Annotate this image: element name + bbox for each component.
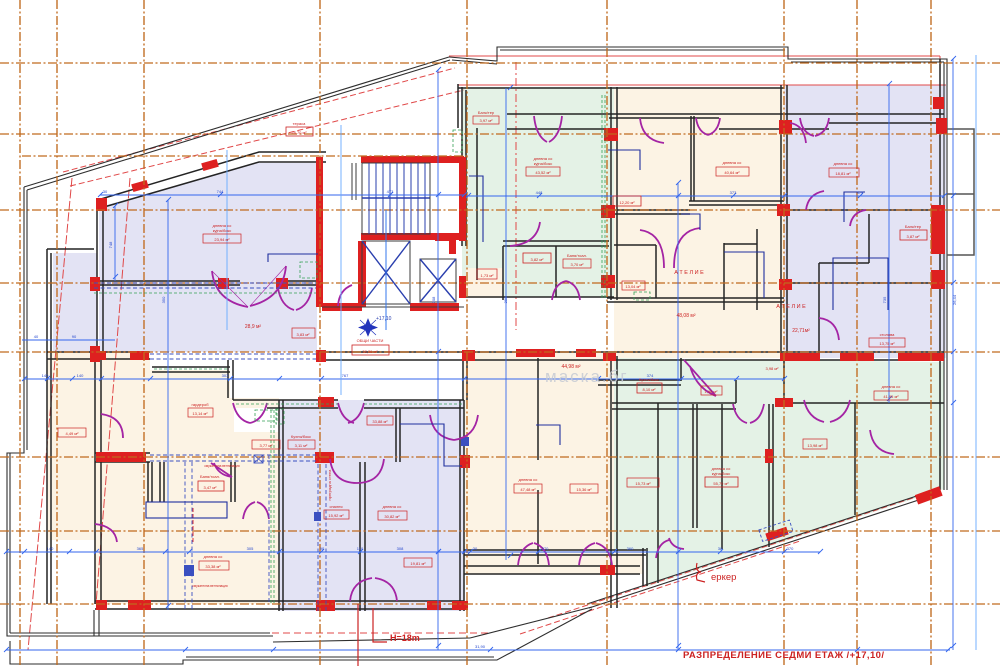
svg-text:55,79 м²: 55,79 м² — [713, 481, 729, 486]
svg-text:спалня: спалня — [329, 504, 342, 509]
svg-text:дневна со: дневна со — [383, 504, 402, 509]
svg-text:ОБЩИ ЧАСТИ: ОБЩИ ЧАСТИ — [357, 338, 384, 343]
svg-text:748: 748 — [108, 241, 113, 248]
svg-text:374: 374 — [647, 373, 654, 378]
svg-text:33,38 м²: 33,38 м² — [205, 564, 221, 569]
svg-text:290: 290 — [503, 296, 508, 303]
svg-text:735: 735 — [882, 296, 887, 303]
svg-text:смукателна вентилация: смукателна вентилация — [204, 464, 240, 468]
svg-text:15,36 м²: 15,36 м² — [576, 487, 592, 492]
svg-text:дневна со: дневна со — [834, 161, 853, 166]
svg-text:90: 90 — [72, 334, 77, 339]
svg-text:379: 379 — [857, 190, 864, 195]
svg-text:350: 350 — [161, 296, 166, 303]
svg-text:38: 38 — [718, 546, 723, 551]
svg-text:41,95 м²: 41,95 м² — [883, 394, 899, 399]
svg-text:3,47 м²: 3,47 м² — [204, 485, 218, 490]
svg-text:маска.бг: маска.бг — [545, 367, 629, 386]
svg-text:кујна/бокс: кујна/бокс — [712, 471, 731, 476]
svg-text:373: 373 — [730, 190, 737, 195]
svg-text:13,14 м²: 13,14 м² — [192, 411, 208, 416]
svg-text:23,94 м²: 23,94 м² — [214, 237, 230, 242]
svg-text:370: 370 — [787, 546, 794, 551]
svg-text:767: 767 — [342, 373, 349, 378]
svg-text:Балк/тер: Балк/тер — [478, 110, 495, 115]
svg-text:33,88 м²: 33,88 м² — [372, 419, 388, 424]
svg-text:15,73 м²: 15,73 м² — [635, 481, 651, 486]
svg-text:столова: столова — [880, 332, 896, 337]
svg-text:18,81 м²: 18,81 м² — [835, 171, 851, 176]
svg-text:3,70 м²: 3,70 м² — [571, 262, 585, 267]
svg-text:дневна со: дневна со — [723, 160, 742, 165]
svg-text:1,73 м²: 1,73 м² — [481, 273, 495, 278]
svg-text:31,90: 31,90 — [475, 644, 486, 649]
svg-text:12,20 м²: 12,20 м² — [619, 200, 635, 205]
svg-text:3,82 м²: 3,82 м² — [531, 257, 545, 262]
svg-text:дневна со: дневна со — [204, 554, 223, 559]
svg-text:308: 308 — [431, 296, 436, 303]
svg-text:1,98 м²: 1,98 м² — [705, 389, 719, 394]
svg-text:370: 370 — [542, 546, 549, 551]
svg-text:H=18m: H=18m — [390, 633, 420, 643]
svg-text:365: 365 — [137, 546, 144, 551]
svg-text:305: 305 — [247, 546, 254, 551]
svg-text:Балк/тер: Балк/тер — [905, 224, 922, 229]
svg-text:кујна/бокс: кујна/бокс — [213, 228, 232, 233]
svg-text:22,71м²: 22,71м² — [792, 328, 810, 334]
svg-text:3,98 м²: 3,98 м² — [766, 366, 780, 371]
svg-text:140: 140 — [77, 373, 84, 378]
svg-text:40: 40 — [34, 334, 39, 339]
svg-text:смукателна вентилация: смукателна вентилация — [192, 584, 228, 588]
svg-text:473: 473 — [387, 189, 394, 194]
svg-text:преградна стена: преградна стена — [327, 469, 332, 501]
svg-text:РАЗПРЕДЕЛЕНИЕ СЕДМИ ЕТАЖ /+17,: РАЗПРЕДЕЛЕНИЕ СЕДМИ ЕТАЖ /+17,10/ — [683, 650, 884, 661]
svg-text:28,9 м²: 28,9 м² — [245, 324, 262, 330]
svg-text:28,70 м²: 28,70 м² — [291, 130, 307, 135]
svg-text:13,98 м²: 13,98 м² — [807, 443, 823, 448]
svg-text:15,92 м²: 15,92 м² — [328, 513, 344, 518]
svg-text:3,97 м²: 3,97 м² — [480, 118, 494, 123]
svg-text:43,52 м²: 43,52 м² — [535, 170, 551, 175]
svg-text:А Т Е Л И Е: А Т Е Л И Е — [776, 304, 806, 310]
svg-text:дневна со: дневна со — [882, 384, 901, 389]
svg-text:110: 110 — [357, 546, 364, 551]
svg-text:3,77 м²: 3,77 м² — [260, 443, 274, 448]
svg-text:30,82 м²: 30,82 м² — [384, 514, 400, 519]
svg-text:744: 744 — [217, 189, 224, 194]
svg-text:13,75 м²: 13,75 м² — [879, 341, 895, 346]
svg-text:19,81 м²: 19,81 м² — [410, 561, 426, 566]
svg-text:3,11 м²: 3,11 м² — [295, 443, 308, 448]
svg-text:3,87 м²: 3,87 м² — [907, 234, 921, 239]
svg-text:4,49 м²: 4,49 м² — [66, 431, 80, 436]
svg-text:28,36 м²: 28,36 м² — [362, 349, 378, 354]
svg-text:3,83 м²: 3,83 м² — [297, 332, 311, 337]
svg-text:8,10 м²: 8,10 м² — [643, 387, 657, 392]
svg-text:еркер: еркер — [711, 572, 736, 583]
svg-text:30: 30 — [103, 189, 108, 194]
svg-text:Баня/тоал.: Баня/тоал. — [567, 253, 587, 258]
svg-text:140: 140 — [47, 546, 54, 551]
svg-text:кујна/бокс: кујна/бокс — [534, 161, 553, 166]
svg-text:Баня/тоал.: Баня/тоал. — [200, 474, 220, 479]
svg-text:А Т Е Л И Е: А Т Е Л И Е — [674, 270, 704, 276]
svg-text:448: 448 — [536, 190, 543, 195]
svg-text:26,44: 26,44 — [952, 294, 957, 305]
svg-text:тераса: тераса — [293, 121, 306, 126]
svg-text:360: 360 — [627, 546, 634, 551]
svg-text:40,64 м²: 40,64 м² — [724, 170, 740, 175]
svg-text:44,98 м²: 44,98 м² — [561, 364, 580, 370]
svg-text:13,04 м²: 13,04 м² — [625, 284, 641, 289]
svg-text:48,08 м²: 48,08 м² — [676, 313, 695, 319]
svg-text:+17,10: +17,10 — [376, 316, 392, 322]
svg-text:90: 90 — [320, 546, 325, 551]
svg-text:Кухня/бокс: Кухня/бокс — [291, 434, 311, 439]
svg-text:303: 303 — [222, 373, 229, 378]
svg-text:гардероб: гардероб — [191, 402, 209, 407]
svg-text:140: 140 — [42, 373, 49, 378]
svg-text:дневна со: дневна со — [519, 477, 538, 482]
svg-text:47,48 м²: 47,48 м² — [520, 487, 536, 492]
svg-text:30: 30 — [473, 546, 478, 551]
svg-text:308: 308 — [397, 546, 404, 551]
